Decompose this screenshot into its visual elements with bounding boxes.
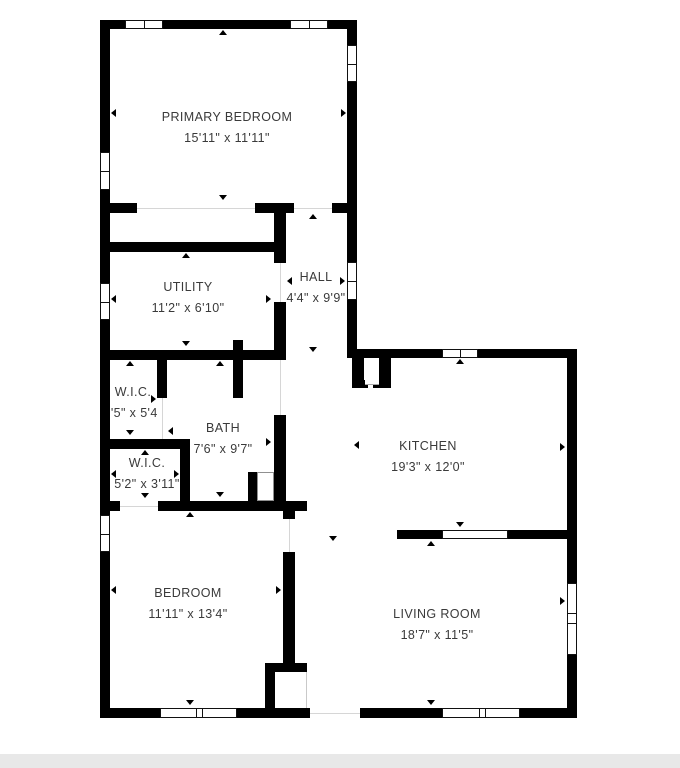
dimension-arrow [216,361,224,366]
room-dims: 15'11" x 11'11" [162,128,293,149]
dimension-arrow [219,30,227,35]
dimension-arrow [287,277,292,285]
window [290,20,328,29]
door-opening [283,519,295,552]
room-name: BEDROOM [148,583,227,604]
wall [157,350,167,398]
room-dims: 5'2" x 3'11" [114,474,179,495]
wall [110,242,284,252]
dimension-arrow [456,522,464,527]
wall [100,203,137,213]
window [567,583,577,655]
room-label-utility: UTILITY 11'2" x 6'10" [152,277,225,319]
window [347,45,357,82]
wall [283,511,295,519]
dimension-arrow [174,470,179,478]
dimension-arrow [219,195,227,200]
wall [158,501,307,511]
dimension-arrow [141,493,149,498]
wall [100,20,110,718]
room-dims: 4'4" x 9'9" [286,288,345,309]
dimension-arrow [126,430,134,435]
door-opening [157,398,167,439]
window [160,708,237,718]
room-dims: 11'11" x 13'4" [148,604,227,625]
room-name: LIVING ROOM [393,604,481,625]
window [442,708,520,718]
window [100,283,110,320]
dimension-arrow [182,341,190,346]
door-opening [294,203,332,213]
dimension-arrow [111,109,116,117]
dimension-arrow [141,450,149,455]
dimension-arrow [560,597,565,605]
room-label-primary-bedroom: PRIMARY BEDROOM 15'11" x 11'11" [162,107,293,149]
dimension-arrow [276,586,281,594]
dimension-arrow [126,361,134,366]
room-dims: 11'2" x 6'10" [152,298,225,319]
wall [274,203,286,263]
room-label-wic-2: W.I.C. 5'2" x 3'11" [114,453,179,495]
floor-plan: PRIMARY BEDROOM 15'11" x 11'11" UTILITY … [0,0,680,768]
wall [275,458,283,473]
front-door-opening [310,708,360,718]
wall [265,663,275,708]
window [125,20,163,29]
dimension-arrow [456,359,464,364]
wall [100,439,190,449]
room-name: UTILITY [152,277,225,298]
dimension-arrow [111,586,116,594]
wall [332,203,357,213]
closet-opening [137,203,255,213]
bath-door-leaf [257,472,274,501]
room-dims: 3'5" x 5'4" [103,403,162,424]
dimension-arrow [329,536,337,541]
door-opening [120,501,158,511]
dimension-arrow [266,438,271,446]
wall [100,501,120,511]
dimension-arrow [186,700,194,705]
room-label-hall: HALL 4'4" x 9'9" [286,267,345,309]
dimension-arrow [341,109,346,117]
window [442,349,478,358]
dimension-arrow [266,295,271,303]
dimension-arrow [427,700,435,705]
closet-front-line [306,672,307,708]
wall [567,349,577,718]
room-name: HALL [286,267,345,288]
dimension-arrow [309,347,317,352]
wall [283,552,295,665]
window [100,152,110,190]
room-label-bedroom: BEDROOM 11'11" x 13'4" [148,583,227,625]
dimension-arrow [560,443,565,451]
door-opening [274,360,286,415]
dimension-arrow [186,512,194,517]
wall [508,530,567,539]
room-name: KITCHEN [391,436,465,457]
dimension-arrow [151,395,156,403]
room-name: W.I.C. [114,453,179,474]
dimension-arrow [111,295,116,303]
room-dims: 18'7" x 11'5" [393,625,481,646]
window [100,515,110,552]
dimension-arrow [168,427,173,435]
dimension-arrow [340,277,345,285]
room-label-bath: BATH 7'6" x 9'7" [193,418,252,460]
dimension-arrow [427,541,435,546]
dimension-arrow [354,441,359,449]
room-dims: 19'3" x 12'0" [391,457,465,478]
room-label-kitchen: KITCHEN 19'3" x 12'0" [391,436,465,478]
kitchen-door-leaf [365,358,379,385]
wall [397,530,442,539]
pass-through-opening [442,530,508,539]
window [347,262,357,300]
wall [233,340,243,398]
dimension-arrow [309,214,317,219]
wall [379,358,391,388]
dimension-arrow [182,253,190,258]
room-name: BATH [193,418,252,439]
footer-band [0,754,680,768]
dimension-arrow [216,492,224,497]
wall [248,472,257,501]
wall [100,350,286,360]
room-label-wic-1: W.I.C. 3'5" x 5'4" [103,382,162,424]
dimension-arrow [111,470,116,478]
room-label-living-room: LIVING ROOM 18'7" x 11'5" [393,604,481,646]
door-opening [274,263,286,302]
room-name: PRIMARY BEDROOM [162,107,293,128]
room-dims: 7'6" x 9'7" [193,439,252,460]
